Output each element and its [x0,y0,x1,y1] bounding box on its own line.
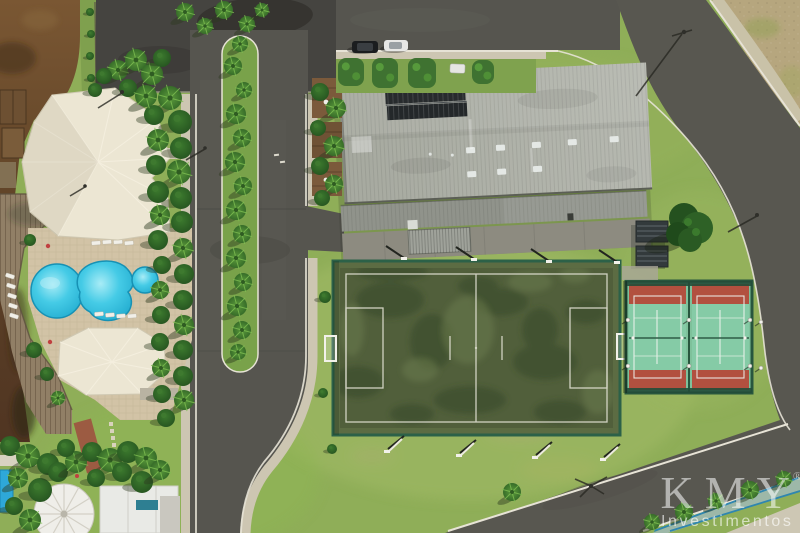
tree-highlight [91,473,96,478]
tree-highlight [318,193,323,198]
lounger-body [116,314,125,319]
turf-wear-patch [534,400,586,424]
tree-highlight [161,413,166,418]
pole-head [759,320,763,324]
tree-canopy [311,83,329,101]
courts-fence-shadow [623,281,627,393]
tree-highlight [173,115,180,122]
skylight [467,171,476,177]
palm-crown [748,488,752,492]
tree-canopy [146,155,166,175]
tree-highlight [157,260,162,265]
goal-left [325,336,336,361]
sun-lounger [91,241,100,246]
palm-crown [231,64,235,68]
palm-crown [222,8,226,12]
tree-highlight [151,159,157,165]
palm-crown [782,477,786,481]
palm-crown [510,490,514,494]
tree-canopy [171,211,193,233]
lounger-body [91,241,100,246]
pole-head [748,364,752,368]
tree-canopy [5,497,23,515]
tree-highlight [179,268,185,274]
palm-crown [240,232,244,236]
tree-highlight [89,32,91,34]
hedge-island [472,60,494,84]
sun-lounger [124,241,133,246]
floodlight-base [600,458,606,461]
tree-canopy [26,342,42,358]
tree-highlight [156,310,161,315]
skylight [610,136,619,142]
tree-canopy [87,469,105,487]
floodlight-base [614,261,620,264]
turf-light-patch [560,267,590,283]
palm-crown [233,160,237,164]
tree-highlight [5,440,11,446]
palm-crown [234,208,238,212]
tree-highlight [30,345,35,350]
hedge-palm [376,63,384,71]
palm-crown [241,184,245,188]
tree-highlight [315,161,320,166]
tree-canopy [173,340,193,360]
tree-canopy [86,8,94,16]
floodlight-base [532,456,538,459]
tree-highlight [178,294,184,300]
hedge-island [408,58,436,88]
tree-canopy [87,30,95,38]
tree-canopy [170,137,192,159]
tree-canopy [152,306,170,324]
palm-crown [236,350,240,354]
pool-main [31,264,83,318]
tree-canopy [173,366,193,386]
palm-crown [714,499,718,503]
skylight [568,139,577,145]
hedge-palm [424,74,432,82]
modern-house [100,486,180,533]
tree-canopy [96,68,112,84]
hedge [472,60,494,84]
sun-lounger [94,312,103,317]
turf-wear-patch [522,308,558,352]
palm-crown [144,456,149,461]
palm-crown [167,95,172,100]
tree-canopy [168,110,192,134]
tree-highlight [149,109,155,115]
hedge [338,58,364,86]
tree-highlight [100,71,105,76]
palm-crown [238,42,242,46]
house-skylight [136,500,158,510]
palm-crown [260,8,263,11]
tree-highlight [157,389,162,394]
hedge [372,58,398,88]
palm-crown [158,213,162,217]
tree-highlight [178,370,184,376]
tree-highlight [87,446,93,452]
tree-highlight [322,293,326,297]
palm-crown [158,288,162,292]
hedge-palm [352,72,360,80]
hedge-palm [475,63,483,71]
tree-highlight [175,191,182,198]
skylight [533,166,542,172]
palm-crown [332,144,336,148]
tree-canopy [173,290,193,310]
tree-canopy [310,120,326,136]
tree-highlight [89,76,91,78]
hedge-palm [342,62,350,70]
junction-wedge [306,206,344,252]
tree-highlight [155,337,160,342]
palm-crown [245,22,249,26]
hedge [408,58,436,88]
palm-crown [332,182,336,186]
aerial-photo: KMY® Investimentos [0,0,800,533]
tree-canopy [319,291,331,303]
tree-highlight [88,10,90,12]
turf-wear-patch [434,386,506,414]
tree-canopy [112,462,132,482]
palm-crown [183,10,187,14]
tree-canopy [87,74,95,82]
tree-highlight [176,215,183,222]
lounger-body [124,241,133,246]
tree-highlight [88,54,90,56]
bleacher-pad [622,266,658,280]
tree-highlight [157,53,162,58]
tree-canopy [151,333,169,351]
pole-head [687,318,691,322]
skylight [532,142,541,148]
skylight [497,168,506,174]
palm-crown [16,476,20,480]
tree-highlight [42,457,49,464]
palm-crown [334,106,338,110]
tree-canopy [147,181,169,203]
tree-canopy [119,79,137,97]
tree-highlight [117,466,123,472]
tree-highlight [61,443,66,448]
hedge-palm [412,63,420,71]
sun-lounger [116,314,125,319]
tree-canopy [314,190,330,206]
parked-car-white-bay [450,64,465,74]
sun-lounger [127,314,136,319]
tree-canopy [174,264,194,284]
tree-highlight [175,141,182,148]
palm-crown [682,510,686,514]
pole-head [626,364,630,368]
pole-head [687,364,691,368]
tree-canopy [24,234,36,246]
tree-canopy [311,157,329,175]
palm-crown [235,304,239,308]
tree-highlight [152,185,159,192]
tree-highlight [53,466,59,472]
palm-crown [234,256,238,260]
skylight [496,145,505,151]
palm-crown [240,136,244,140]
palm-crown [650,520,654,524]
tree-canopy [148,230,168,250]
pole-head [759,366,763,370]
turf-wear-patch [458,276,498,296]
turf-wear-patch [356,282,424,318]
floodlight-base [456,454,462,457]
annex-vent [567,213,573,220]
hedge-island [372,58,398,88]
tree-canopy [28,478,52,502]
garage-roof [160,496,180,533]
pool-sparkle [40,277,60,289]
lounger-body [127,314,136,319]
lounger-body [102,240,111,245]
palm-crown [182,323,186,327]
palm-crown [181,246,185,250]
tree-canopy [153,256,171,274]
palm-crown [159,366,163,370]
palm-crown [28,518,33,523]
tree-highlight [122,445,129,452]
palm-crown [74,460,79,465]
palm-crown [176,169,181,174]
palm-crown [25,453,30,458]
annex-door [407,220,417,229]
palm-crown [150,72,155,77]
tree-highlight [136,475,143,482]
hedge-palm [386,74,394,82]
tree-highlight [43,370,47,374]
tree-highlight [27,236,31,240]
palm-crown [241,280,245,284]
tree-canopy [40,367,54,381]
tree-highlight [320,390,323,393]
floodlight-base [546,260,552,263]
tree-canopy [153,385,171,403]
pole-head [748,318,752,322]
tree-highlight [33,483,40,490]
floodlight-base [384,450,390,453]
tree-highlight [153,234,159,240]
tree-canopy [157,409,175,427]
tree-canopy [88,83,102,97]
scene-canvas [0,0,800,533]
tree-highlight [9,501,14,506]
turf-light-patch [582,370,614,414]
tree-highlight [315,87,320,92]
tree-highlight [329,446,332,449]
palm-crown [234,112,238,116]
tree-canopy [86,52,94,60]
palm-crown [56,396,59,399]
palm-crown [182,398,186,402]
lounger-body [105,313,114,318]
palm-crown [158,468,162,472]
floodlight-base [471,258,477,261]
floodlight-base [401,257,407,260]
tree-canopy [318,388,328,398]
tree-canopy [144,105,164,125]
soccer-field [325,261,628,435]
palm-crown [144,94,149,99]
hedge-island [338,58,364,86]
sun-lounger [105,313,114,318]
tree-highlight [123,83,128,88]
sport-courts [622,281,763,393]
palm-crown [156,138,161,143]
palm-crown [242,88,246,92]
pole-head [626,318,630,322]
turf-light-patch [402,358,438,382]
hedge-palm [483,72,491,80]
turf-light-patch [508,272,552,292]
tree-canopy [153,49,171,67]
tree-canopy [327,444,337,454]
turf-light-patch [340,304,364,356]
lounger-body [94,312,103,317]
palm-crown [240,328,244,332]
palm-crown [134,58,139,63]
sun-lounger [102,240,111,245]
tree-highlight [314,123,319,128]
turf-wear-patch [566,300,606,324]
tree-canopy [57,439,75,457]
tree-highlight [178,344,184,350]
palm-crown [203,24,207,28]
tree-highlight [91,86,95,90]
turf-wear-patch [390,404,434,424]
tree-canopy [170,187,192,209]
